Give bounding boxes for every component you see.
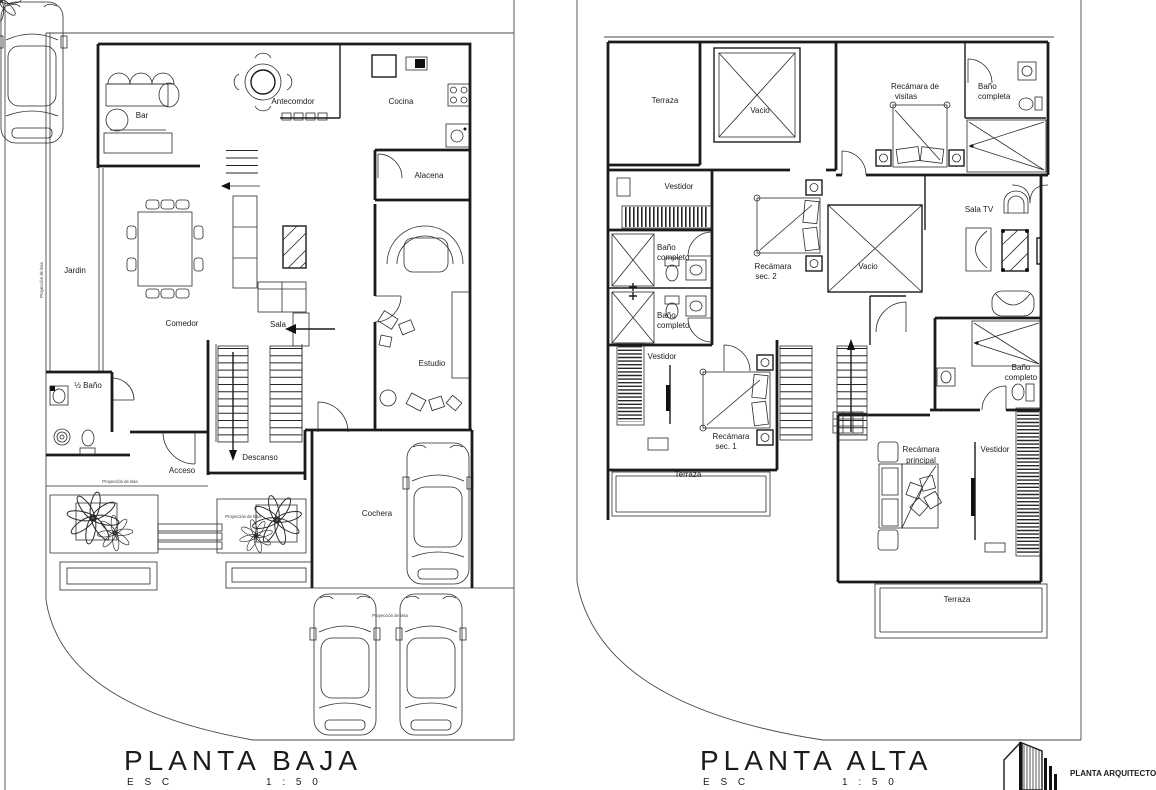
room-label-rec-ppal-1: Recámara [903,445,940,454]
bed-sec2 [754,180,822,271]
title-block-alta: PLANTA ALTA E S C 1 : 5 0 [700,745,932,788]
room-label-rec-visitas-2: visitas [895,92,917,101]
plan-esc-value-baja: 1 : 5 0 [266,777,322,788]
room-label-vacio1: Vacio [750,106,770,115]
room-label-rec-sec1-1: Recámara [713,432,750,441]
stamp-label: PLANTA ARQUITECTO [1070,769,1156,778]
room-label-jardin: Jardin [64,266,86,275]
room-label-bar: Bar [136,111,149,120]
bath-right [937,291,1041,401]
room-label-bano-visitas-1: Baño [978,82,997,91]
half-bath-fixtures [50,386,95,455]
room-label-bano-visitas-2: completa [978,92,1011,101]
lot-boundary-alta [577,0,1081,740]
room-label-bano2-1: Baño [657,311,676,320]
title-block-baja: PLANTA BAJA E S C 1 : 5 0 [124,745,362,788]
room-label-descanso: Descanso [242,453,278,462]
room-label-bano1-2: completo [657,253,690,262]
room-label-medio-bano: ½ Baño [74,381,102,390]
room-label-rec-sec1-2: sec. 1 [715,442,737,451]
antecomedor-table [234,53,327,120]
dining-table [127,200,203,298]
room-label-vestidor-sup: Vestidor [665,182,694,191]
bed-visitas [876,102,964,167]
planters [50,495,312,590]
room-label-terraza-med: Terraza [675,470,702,479]
labels-alta: Terraza Vacio Recámara de visitas Baño c… [648,82,1038,604]
planta-baja-plan: Antecomdor Cocina Bar Alacena Jardin Com… [0,0,514,740]
plan-title-baja: PLANTA BAJA [124,745,362,776]
room-label-antecomedor: Antecomdor [271,97,314,106]
stairs-baja [158,150,302,549]
room-label-terraza-sup: Terraza [652,96,679,105]
sala-tv-furniture [966,191,1041,272]
plan-esc-label-baja: E S C [127,777,173,788]
vacio-2-box [828,205,922,292]
vestidor-details [617,178,1005,552]
room-label-sala: Sala [270,320,287,329]
room-label-rec-visitas-1: Recámara de [891,82,940,91]
balconies [612,472,1047,638]
room-label-vestidor-med: Vestidor [648,352,677,361]
room-label-rec-sec2-1: Recámara [755,262,792,271]
room-label-vacio2: Vacio [858,262,878,271]
architect-logo: PLANTA ARQUITECTO [1004,742,1156,790]
drawing-sheet: Antecomdor Cocina Bar Alacena Jardin Com… [0,0,1156,790]
note-proyeccion-4: Proyección de losa [39,262,44,298]
bath-top-right [967,62,1046,172]
note-proyeccion-2: Proyección de losa [225,514,261,519]
room-label-sala-tv: Sala TV [965,205,994,214]
room-label-bano1-1: Baño [657,243,676,252]
note-proyeccion-3: Proyección de losa [372,613,408,618]
room-label-estudio: Estudio [419,359,446,368]
room-label-alacena: Alacena [415,171,444,180]
plan-title-alta: PLANTA ALTA [700,745,932,776]
room-label-acceso: Acceso [169,466,196,475]
room-label-vestidor-ppal: Vestidor [981,445,1010,454]
vacio-1-box [714,48,800,142]
room-label-rec-sec2-2: sec. 2 [755,272,777,281]
kitchen-appliances [372,55,469,147]
room-label-bano3-1: Baño [1012,363,1031,372]
room-label-rec-ppal-2: principal [906,456,936,465]
room-label-comedor: Comedor [166,319,199,328]
plan-esc-label-alta: E S C [703,777,749,788]
estudio-furniture [378,226,470,411]
car-icon [0,2,67,143]
floorplan-canvas: Antecomdor Cocina Bar Alacena Jardin Com… [0,0,1156,790]
note-proyeccion-1: Proyección de losa [102,479,138,484]
planta-alta-plan: Terraza Vacio Recámara de visitas Baño c… [577,0,1081,740]
room-label-terraza-inf: Terraza [944,595,971,604]
stairs-alta [780,339,867,440]
room-label-bano2-2: completo [657,321,690,330]
room-label-cochera: Cochera [362,509,393,518]
plan-esc-value-alta: 1 : 5 0 [842,777,898,788]
room-label-cocina: Cocina [389,97,414,106]
room-label-bano3-2: completo [1005,373,1038,382]
